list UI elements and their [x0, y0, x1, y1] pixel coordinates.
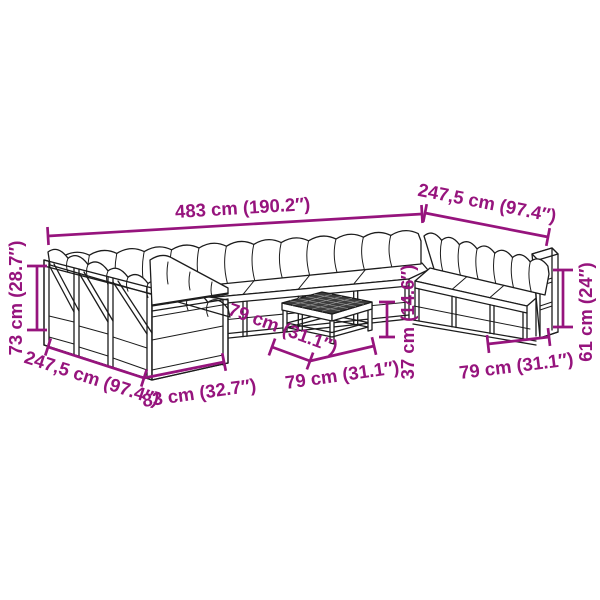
dim-label-back-total-width: 483 cm (190.2″)	[174, 193, 310, 222]
dim-label-armrest-height: 61 cm (24″)	[575, 262, 596, 361]
dim-label-right-section-depth: 247,5 cm (97.4″)	[416, 179, 558, 226]
dim-label-table-height: 37 cm (14.6″)	[397, 265, 418, 380]
diagram-canvas: 483 cm (190.2″) 247,5 cm (97.4″) 73 cm (…	[0, 0, 600, 600]
dim-label-right-module-width: 79 cm (31.1″)	[458, 348, 575, 383]
right-sofa-section	[413, 233, 558, 345]
dim-label-table-width: 79 cm (31.1″)	[284, 356, 401, 393]
dim-label-backrest-height: 73 cm (28.7″)	[5, 241, 26, 356]
furniture-dimension-diagram: 483 cm (190.2″) 247,5 cm (97.4″) 73 cm (…	[0, 0, 600, 600]
dim-label-left-module-width: 83 cm (32.7″)	[141, 374, 258, 411]
